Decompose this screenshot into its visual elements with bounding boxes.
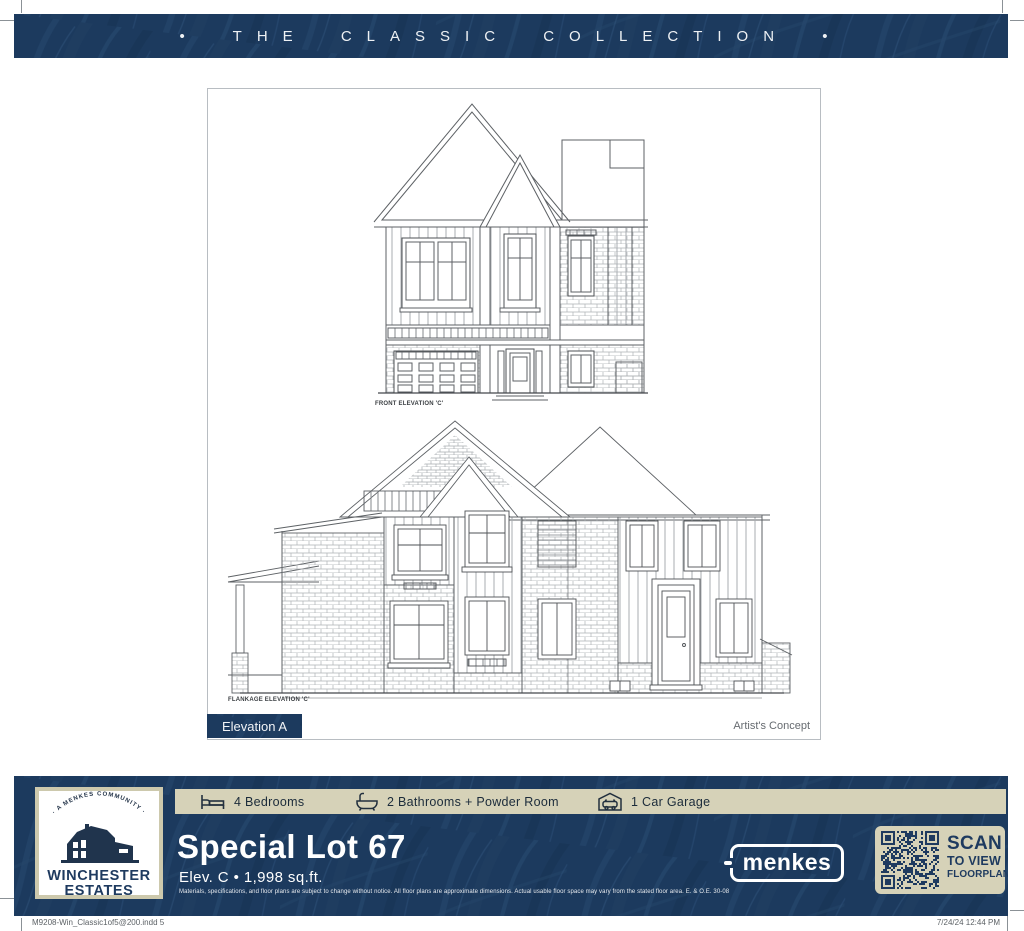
community-name-line2: ESTATES	[39, 884, 159, 899]
print-footer-left: M9208-Win_Classic1of5@200.indd 5	[32, 918, 164, 927]
crop-mark	[1007, 916, 1008, 931]
spec-label: 1 Car Garage	[631, 795, 710, 809]
menkes-logo-dash	[724, 861, 732, 865]
qr-caption-line3: FLOORPLAN	[947, 870, 1008, 880]
qr-caption: SCAN TO VIEW FLOORPLAN	[947, 834, 1008, 880]
svg-text:· A MENKES COMMUNITY ·: · A MENKES COMMUNITY ·	[52, 791, 147, 815]
crop-mark	[1010, 20, 1024, 21]
qr-code	[881, 831, 939, 889]
elevation-badge: Elevation A	[207, 714, 302, 738]
spec-bathrooms: 2 Bathrooms + Powder Room	[355, 789, 559, 814]
flankage-elevation-drawing	[222, 413, 798, 703]
front-elevation-label: FRONT ELEVATION 'C'	[375, 401, 443, 407]
flankage-porch	[228, 585, 282, 693]
info-band: · A MENKES COMMUNITY · WINCHESTER ESTATE…	[14, 776, 1008, 916]
crop-mark	[1010, 910, 1024, 911]
spec-label: 4 Bedrooms	[234, 795, 304, 809]
brochure-page: { "banner": { "text": "• THE CLASSIC COL…	[0, 0, 1024, 931]
lot-title: Special Lot 67	[177, 828, 406, 866]
spec-label: 2 Bathrooms + Powder Room	[387, 795, 559, 809]
front-entry-door	[490, 345, 550, 400]
spec-bedrooms: 4 Bedrooms	[200, 789, 304, 814]
collection-banner: • THE CLASSIC COLLECTION •	[14, 14, 1008, 58]
qr-panel: SCAN TO VIEW FLOORPLAN	[875, 826, 1005, 894]
spec-bar: 4 Bedrooms 2 Bathrooms + Powder Room	[175, 789, 1006, 814]
collection-title: • THE CLASSIC COLLECTION •	[14, 14, 1008, 58]
bath-icon	[355, 792, 379, 811]
barn-icon	[57, 822, 141, 864]
crop-mark	[0, 898, 14, 899]
lot-disclaimer: Materials, specifications, and floor pla…	[179, 889, 729, 895]
artists-concept-note: Artist's Concept	[640, 720, 810, 732]
flankage-elevation-label: FLANKAGE ELEVATION 'C'	[228, 697, 310, 703]
spec-garage: 1 Car Garage	[597, 789, 710, 814]
elevation-badge-label: Elevation A	[207, 714, 302, 738]
crop-mark	[0, 20, 14, 21]
garage-icon	[597, 792, 623, 811]
front-garage-door	[394, 351, 478, 393]
bed-icon	[200, 793, 226, 811]
qr-caption-line1: SCAN	[947, 834, 1008, 853]
crop-mark	[21, 0, 22, 13]
front-elevation-drawing	[372, 100, 652, 404]
winchester-estates-logo: · A MENKES COMMUNITY · WINCHESTER ESTATE…	[35, 787, 163, 899]
lot-subtitle: Elev. C • 1,998 sq.ft.	[179, 869, 323, 886]
community-name-line1: WINCHESTER	[39, 869, 159, 884]
crop-mark	[1002, 0, 1003, 13]
flankage-door	[650, 579, 702, 690]
logo-arc-tagline: · A MENKES COMMUNITY ·	[40, 791, 158, 817]
menkes-logo-frame: menkes	[730, 844, 844, 882]
menkes-logo-text: menkes	[743, 851, 832, 876]
print-footer-right: 7/24/24 12:44 PM	[915, 918, 1000, 927]
qr-caption-line2: TO VIEW	[947, 855, 1008, 868]
menkes-logo: menkes	[724, 844, 846, 884]
crop-mark	[21, 918, 22, 931]
